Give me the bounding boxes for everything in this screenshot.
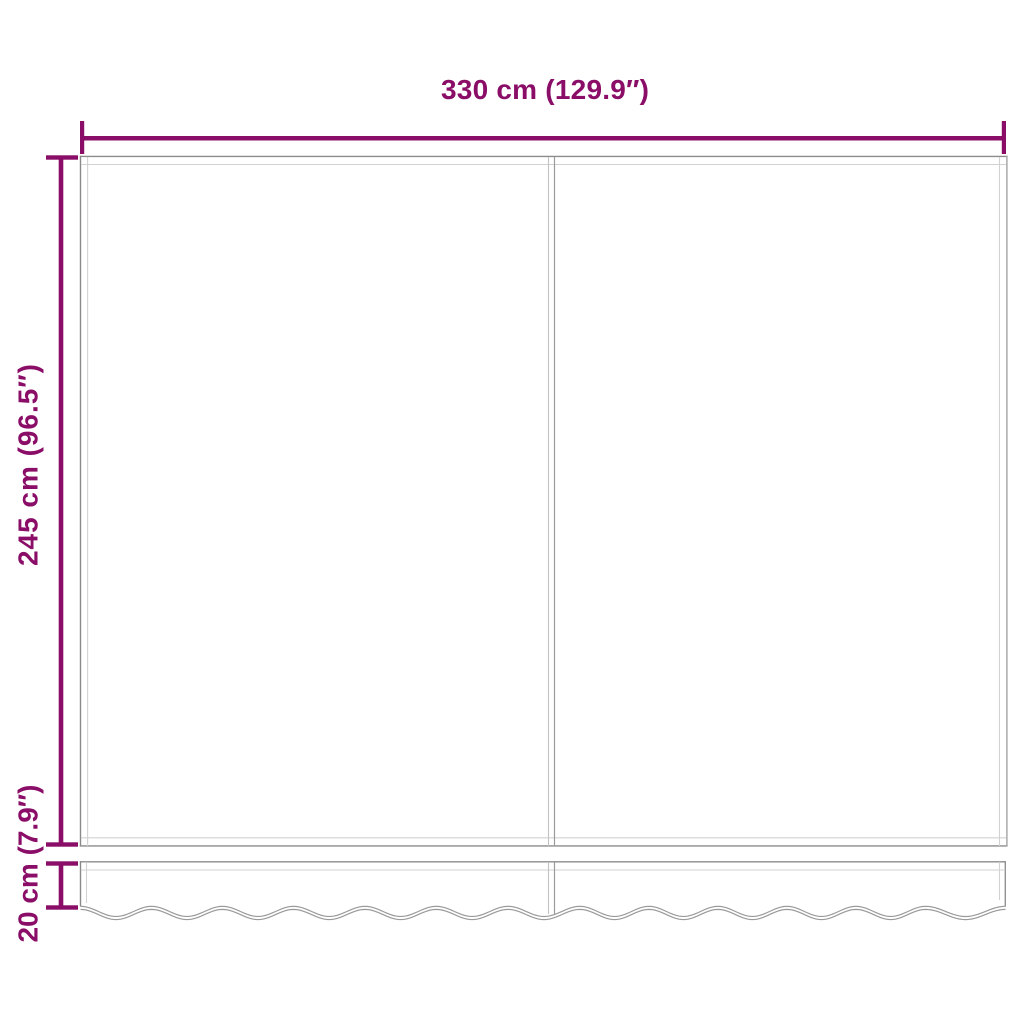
svg-text:330 cm (129.9″): 330 cm (129.9″) bbox=[441, 74, 649, 105]
svg-text:245 cm (96.5″): 245 cm (96.5″) bbox=[13, 364, 44, 566]
svg-text:20 cm (7.9″): 20 cm (7.9″) bbox=[13, 785, 44, 943]
